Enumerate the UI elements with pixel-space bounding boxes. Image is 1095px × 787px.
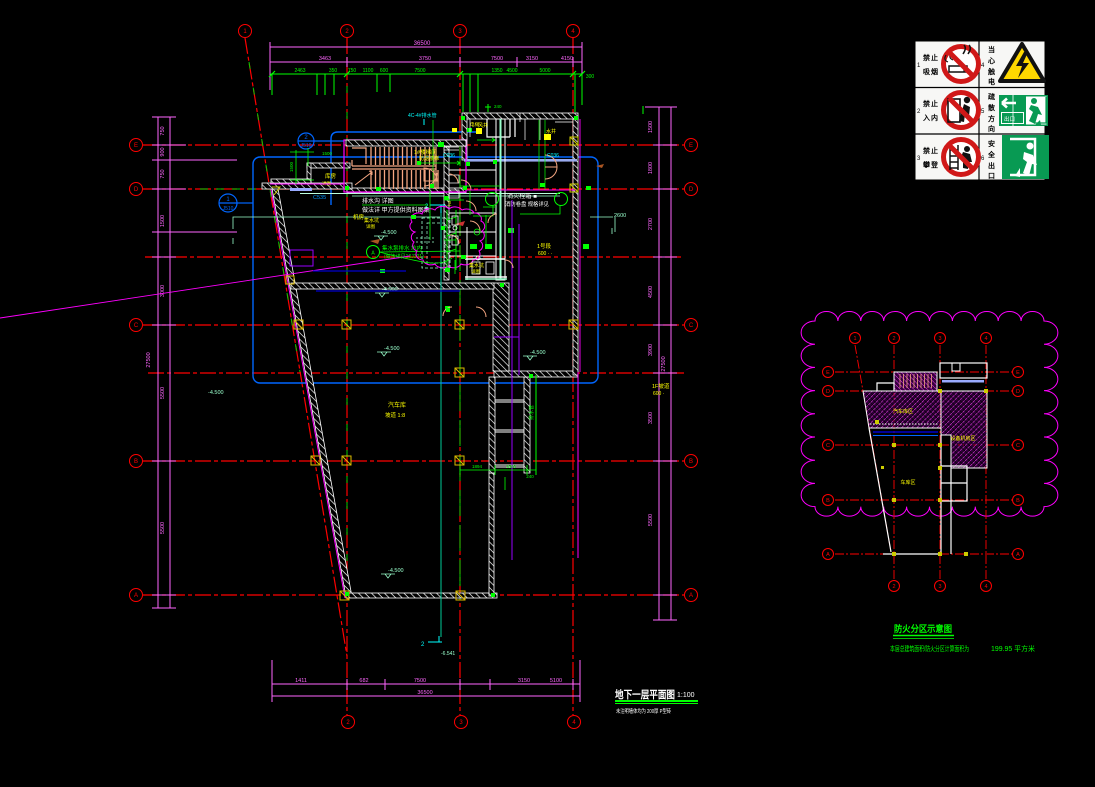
svg-text:防火分区示意图: 防火分区示意图 (894, 623, 952, 634)
svg-text:-4.500: -4.500 (384, 346, 400, 352)
svg-text:3: 3 (938, 336, 941, 342)
svg-text:2: 2 (892, 336, 895, 342)
svg-text:禁: 禁 (922, 99, 930, 108)
svg-text:安: 安 (988, 139, 995, 148)
svg-text:散: 散 (988, 103, 995, 112)
svg-text:199.95 平方米: 199.95 平方米 (991, 644, 1035, 653)
svg-text:D: D (826, 389, 830, 395)
svg-text:A: A (1016, 552, 1020, 558)
svg-text:B: B (1016, 498, 1020, 504)
svg-text:疏: 疏 (988, 92, 995, 101)
svg-text:出口: 出口 (1004, 115, 1015, 123)
svg-text:3900: 3900 (648, 344, 654, 356)
svg-text:止: 止 (931, 53, 938, 62)
svg-text:E: E (689, 143, 693, 149)
svg-text:1500: 1500 (648, 121, 654, 133)
svg-text:吸: 吸 (923, 68, 931, 76)
svg-text:2700: 2700 (648, 218, 654, 230)
svg-text:750: 750 (160, 126, 166, 135)
svg-text:1411: 1411 (295, 678, 307, 684)
svg-text:电: 电 (988, 77, 995, 86)
svg-text:止: 止 (931, 99, 938, 108)
svg-text:汽车库: 汽车库 (388, 401, 406, 409)
svg-text:4500: 4500 (506, 68, 517, 74)
svg-text:1800: 1800 (648, 162, 654, 174)
svg-text:集水坑: 集水坑 (469, 262, 484, 269)
svg-text:300: 300 (586, 74, 595, 80)
svg-text:5500: 5500 (160, 387, 166, 399)
svg-text:全: 全 (987, 150, 996, 159)
svg-text:D: D (134, 187, 139, 193)
svg-text:库房: 库房 (325, 172, 337, 180)
svg-text:C036: C036 (443, 153, 455, 159)
svg-text:4500: 4500 (648, 286, 654, 298)
svg-text:4: 4 (984, 336, 987, 342)
svg-text:水井: 水井 (546, 128, 556, 135)
svg-text:1500: 1500 (289, 161, 294, 172)
svg-text:未注明墙体均为 200厚 P型砖: 未注明墙体均为 200厚 P型砖 (616, 707, 671, 715)
svg-text:3150: 3150 (518, 678, 530, 684)
svg-text:方: 方 (988, 114, 995, 123)
svg-text:A: A (826, 552, 830, 558)
svg-text:4C-4#排水管: 4C-4#排水管 (408, 112, 437, 119)
svg-text:5000: 5000 (539, 68, 550, 74)
svg-text:电梯: 电梯 (470, 121, 479, 128)
svg-text:1F坡道: 1F坡道 (652, 382, 670, 390)
svg-text:900: 900 (160, 147, 166, 156)
svg-text:3500: 3500 (648, 412, 654, 424)
svg-text:A: A (134, 593, 138, 599)
svg-text:600 ·: 600 · (653, 391, 665, 397)
svg-text:地下一层平面图: 地下一层平面图 (615, 688, 675, 701)
svg-text:D: D (689, 187, 694, 193)
svg-text:设备机房区: 设备机房区 (950, 435, 975, 442)
svg-text:车库区: 车库区 (900, 479, 915, 486)
svg-text:触: 触 (987, 67, 995, 76)
svg-text:1500: 1500 (506, 464, 517, 469)
svg-text:1500: 1500 (160, 215, 166, 227)
svg-text:登: 登 (930, 160, 939, 169)
svg-text:机房: 机房 (353, 213, 365, 221)
svg-text:消火栓箱 ■: 消火栓箱 ■ (507, 192, 537, 200)
svg-text:入: 入 (922, 114, 930, 122)
svg-text:682: 682 (359, 678, 368, 684)
svg-text:7500: 7500 (414, 678, 426, 684)
svg-text:2463: 2463 (294, 68, 305, 74)
svg-text:向: 向 (988, 124, 995, 133)
svg-text:坡道 1:8: 坡道 1:8 (385, 411, 405, 419)
svg-text:C535: C535 (313, 195, 326, 201)
svg-text:出: 出 (988, 161, 995, 170)
svg-text:汽车库区: 汽车库区 (893, 408, 913, 415)
svg-text:2600: 2600 (614, 213, 626, 219)
svg-text:B: B (689, 459, 693, 465)
svg-text:1100: 1100 (363, 68, 374, 74)
svg-text:口: 口 (988, 172, 995, 180)
svg-text:7500: 7500 (414, 68, 425, 74)
svg-text:烟: 烟 (931, 67, 938, 76)
svg-text:3463: 3463 (319, 56, 331, 62)
svg-text:E: E (1016, 370, 1020, 376)
svg-text:750: 750 (348, 68, 357, 74)
svg-text:心: 心 (988, 56, 995, 65)
svg-text:E: E (134, 143, 138, 149)
svg-text:600 · ·: 600 · · (538, 251, 553, 257)
svg-text:-4.500: -4.500 (388, 568, 404, 574)
svg-text:5100: 5100 (550, 678, 562, 684)
svg-text:1: 1 (853, 336, 856, 342)
svg-text:B: B (826, 498, 830, 504)
svg-text:C: C (1016, 443, 1020, 449)
svg-text:1号段: 1号段 (537, 242, 552, 250)
svg-text:3750: 3750 (419, 56, 431, 62)
svg-text:1500: 1500 (322, 151, 333, 156)
svg-text:-6.541: -6.541 (441, 651, 455, 657)
svg-text:3150: 3150 (526, 56, 538, 62)
svg-text:B: B (134, 459, 138, 465)
svg-text:攀: 攀 (922, 160, 931, 169)
svg-text:1:100: 1:100 (677, 692, 695, 699)
svg-text:36500: 36500 (414, 41, 431, 47)
svg-text:本层总建筑面积/防火分区计算面积为: 本层总建筑面积/防火分区计算面积为 (890, 644, 969, 653)
svg-text:350: 350 (329, 68, 338, 74)
svg-text:750: 750 (160, 169, 166, 178)
svg-text:D: D (1016, 389, 1020, 395)
svg-text:J510: J510 (223, 206, 234, 212)
svg-text:A: A (689, 593, 693, 599)
svg-text:3000: 3000 (160, 285, 166, 297)
svg-text:-4.500: -4.500 (208, 390, 224, 396)
svg-text:E: E (826, 370, 830, 376)
svg-text:卫: 卫 (447, 201, 452, 206)
svg-text:-4.500: -4.500 (381, 230, 397, 236)
svg-text:C: C (134, 323, 139, 329)
svg-text:详图: 详图 (366, 223, 375, 230)
svg-text:27500: 27500 (146, 352, 152, 367)
svg-text:5500: 5500 (160, 522, 166, 534)
svg-text:600: 600 (380, 68, 389, 74)
svg-text:排水沟 详图: 排水沟 详图 (362, 197, 394, 205)
svg-text:禁: 禁 (922, 53, 930, 62)
svg-text:详图: 详图 (471, 268, 480, 275)
svg-text:-4.500: -4.500 (530, 350, 546, 356)
svg-text:风井: 风井 (478, 122, 488, 129)
svg-text:C: C (689, 323, 694, 329)
svg-text:3: 3 (938, 584, 941, 590)
svg-text:当: 当 (988, 45, 995, 54)
svg-text:内: 内 (931, 113, 938, 122)
svg-text:止: 止 (931, 146, 938, 155)
svg-text:C036: C036 (547, 153, 559, 159)
svg-text:1894: 1894 (472, 464, 483, 469)
svg-text:J510: J510 (301, 143, 312, 149)
svg-text:4150: 4150 (561, 56, 573, 62)
svg-text:7500: 7500 (491, 56, 503, 62)
svg-text:详图 ·: 详图 · (322, 180, 334, 187)
svg-text:-4.500: -4.500 (382, 287, 398, 293)
svg-text:36500: 36500 (417, 690, 432, 696)
svg-text:集水坑: 集水坑 (364, 217, 379, 224)
svg-text:防烟楼梯: 防烟楼梯 (419, 155, 439, 162)
svg-text:2: 2 (892, 584, 895, 590)
svg-text:240: 240 (494, 104, 502, 109)
svg-text:5500: 5500 (648, 514, 654, 526)
svg-text:4: 4 (984, 584, 987, 590)
svg-text:禁: 禁 (922, 146, 930, 155)
svg-text:C: C (826, 443, 830, 449)
svg-text:240: 240 (526, 474, 534, 479)
svg-text:排水管: 排水管 (528, 405, 535, 420)
svg-text:1350: 1350 (491, 68, 502, 74)
svg-text:27500: 27500 (661, 356, 667, 371)
